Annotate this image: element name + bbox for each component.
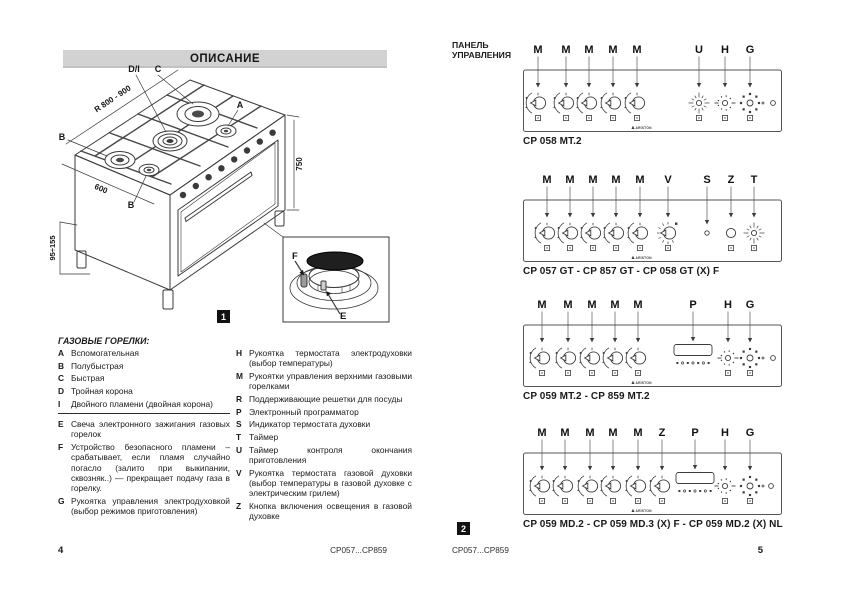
gas-control: M [626, 299, 646, 376]
control-label: V [664, 174, 672, 186]
brand-flame-icon [632, 256, 635, 259]
flame-safety-device [301, 274, 307, 287]
gas-control: Z [650, 427, 670, 504]
legend-key: C [58, 373, 64, 383]
brand-logo: ARISTON [636, 126, 653, 130]
brand-flame-icon [632, 381, 635, 384]
legend-divider [58, 413, 230, 414]
timer-control: T [744, 174, 765, 251]
legend-item-H: HРукоятка термостата электродуховки (выб… [236, 348, 412, 369]
control-label: H [721, 44, 729, 56]
control-label: M [537, 427, 546, 439]
thermo-control: H [715, 44, 736, 121]
legend-key: M [236, 371, 243, 381]
legend-item-S: SИндикатор термостата духовки [236, 419, 412, 429]
control-label: M [608, 44, 617, 56]
legend-left-column: AВспомогательнаяBПолубыстраяCБыстраяDТро… [58, 348, 230, 524]
legend-key: I [58, 399, 60, 409]
legend-text: Рукоятка термостата газовой духовки (выб… [249, 468, 412, 499]
legend-text: Вспомогательная [71, 348, 139, 358]
legend-key: B [58, 361, 64, 371]
thermo-control: H [715, 427, 736, 504]
page-number-left: 4 [58, 545, 63, 556]
legend-key: D [58, 386, 64, 396]
control-label: M [565, 174, 574, 186]
legend-text: Индикатор термостата духовки [249, 419, 370, 429]
control-label: M [633, 427, 642, 439]
brand-flame-icon [632, 509, 635, 512]
control-label: M [542, 174, 551, 186]
legend-text: Рукоятки управления верхними газовыми го… [249, 371, 412, 391]
dim-radius: R 800 - 900 [93, 83, 133, 114]
legend-key: Z [236, 501, 241, 511]
legend-item-I: IДвойного пламени (двойная корона) [58, 399, 230, 409]
panel-caption: CP 059 MT.2 - CP 859 MT.2 [523, 391, 650, 402]
oven-handle [185, 172, 252, 222]
gas-control: M [558, 174, 578, 251]
control-label: M [610, 299, 619, 311]
legend-item-G: GРукоятка управления электродуховкой (вы… [58, 496, 230, 517]
gas-control: M [556, 299, 576, 376]
sled-control: S [703, 174, 710, 235]
legend-text: Тройная корона [71, 386, 133, 396]
panel-caption: CP 058 MT.2 [523, 136, 582, 147]
label-f: F [292, 251, 298, 262]
indicator-control [769, 484, 774, 489]
control-label: G [746, 427, 755, 439]
timer-control: U [689, 44, 710, 121]
brand-logo: ARISTON [636, 381, 653, 385]
legend-key: A [58, 348, 64, 358]
control-panel-1: MMMMMUHGARISTONCP 058 MT.2 [523, 43, 842, 155]
legend-item-C: CБыстрая [58, 373, 230, 383]
control-panels: MMMMMUHGARISTONCP 058 MT.2MMMMMVSZTARIST… [523, 0, 842, 595]
legend-item-V: VРукоятка термостата газовой духовки (вы… [236, 468, 412, 499]
control-label: H [721, 427, 729, 439]
control-label: M [563, 299, 572, 311]
gas-control: M [604, 174, 624, 251]
legend-text: Быстрая [71, 373, 104, 383]
legend-text: Таймер [249, 432, 278, 442]
gas-control: M [535, 174, 555, 251]
dim-height: 750 [295, 157, 304, 171]
legend-item-R: RПоддерживающие решетки для посуды [236, 394, 412, 404]
indicator-control [771, 356, 776, 361]
legend-text: Рукоятка термостата электродуховки (выбо… [249, 348, 412, 368]
control-panel-drawing: MMMMMZPHGARISTON [523, 426, 815, 517]
dim-legs: 95÷155 [50, 236, 57, 261]
control-label: M [587, 299, 596, 311]
gas-control: M [580, 299, 600, 376]
legend-key: G [58, 496, 65, 506]
control-label: M [588, 174, 597, 186]
control-label: P [689, 299, 696, 311]
control-panel-drawing: MMMMMPHGARISTON [523, 298, 815, 389]
brand-logo: ARISTON [636, 509, 653, 513]
control-panel-drawing: MMMMMUHGARISTON [523, 43, 815, 134]
oven-door [178, 140, 278, 276]
legend-item-E: EСвеча электронного зажигания газовых го… [58, 419, 230, 440]
legend-right-column: HРукоятка термостата электродуховки (выб… [236, 348, 412, 524]
burner-rapid [177, 102, 219, 126]
legend-item-F: FУстройство безопасного пламени – срабат… [58, 442, 230, 493]
gas-control: M [601, 427, 621, 504]
button-control: Z [726, 174, 735, 251]
stove-legs [77, 211, 284, 309]
gas-control: M [578, 427, 598, 504]
label-b-front: B [128, 200, 135, 210]
prog-control: P [676, 427, 714, 492]
legend-key: U [236, 445, 242, 455]
heading-line-2: УПРАВЛЕНИЯ [452, 50, 511, 60]
gas-control: M [530, 299, 550, 376]
burner-detail-inset [283, 237, 389, 322]
legend-text: Поддерживающие решетки для посуды [249, 394, 402, 404]
figure-1-badge: 1 [217, 310, 230, 323]
control-label: M [561, 44, 570, 56]
legend-key: E [58, 419, 64, 429]
legend-item-U: UТаймер контроля окончания приготовления [236, 445, 412, 466]
gas-control: M [526, 44, 546, 121]
vknob-control: V [657, 174, 677, 251]
selector-control: G [740, 299, 764, 376]
legend-key: F [58, 442, 63, 452]
legend: AВспомогательнаяBПолубыстраяCБыстраяDТро… [58, 348, 418, 524]
legend-item-T: TТаймер [236, 432, 412, 442]
indicator-control [771, 101, 776, 106]
label-di: D/I [128, 64, 140, 74]
control-label: M [533, 44, 542, 56]
legend-text: Рукоятка управления электродуховкой (выб… [71, 496, 230, 516]
legend-text: Таймер контроля окончания приготовления [249, 445, 412, 465]
burner-semirapid-front [139, 164, 159, 176]
control-panel-4: MMMMMZPHGARISTONCP 059 MD.2 - CP 059 MD.… [523, 426, 842, 538]
stove-diagram: D/I C A B B R 800 - 900 600 750 95÷155 [50, 60, 395, 330]
legend-text: Двойного пламени (двойная корона) [71, 399, 213, 409]
burner-triple-crown [153, 131, 187, 151]
legend-text: Электронный программатор [249, 407, 359, 417]
gas-control: M [581, 174, 601, 251]
label-b: B [59, 132, 66, 142]
brand-logo: ARISTON [636, 256, 653, 260]
panel-caption: CP 059 MD.2 - CP 059 MD.3 (X) F - CP 059… [523, 519, 783, 530]
label-c: C [155, 64, 162, 74]
control-label: G [746, 44, 755, 56]
model-range-right: CP057...CP859 [452, 546, 509, 555]
control-panel-drawing: MMMMMVSZTARISTON [523, 173, 815, 264]
control-label: M [537, 299, 546, 311]
control-label: M [635, 174, 644, 186]
control-label: T [751, 174, 758, 186]
gas-control: M [625, 44, 645, 121]
legend-item-A: AВспомогательная [58, 348, 230, 358]
gas-control: M [628, 174, 648, 251]
legend-key: S [236, 419, 242, 429]
legend-key: P [236, 407, 242, 417]
prog-control: P [674, 299, 712, 364]
control-label: M [632, 44, 641, 56]
control-label: Z [728, 174, 735, 186]
legend-item-P: PЭлектронный программатор [236, 407, 412, 417]
gas-control: M [530, 427, 550, 504]
selector-control: G [740, 427, 764, 504]
control-label: H [724, 299, 732, 311]
burner-cap [307, 252, 363, 270]
selector-control: G [740, 44, 764, 121]
legend-item-M: MРукоятки управления верхними газовыми г… [236, 371, 412, 392]
gas-control: M [626, 427, 646, 504]
control-label: S [703, 174, 710, 186]
control-label: P [691, 427, 698, 439]
control-panel-3: MMMMMPHGARISTONCP 059 MT.2 - CP 859 MT.2 [523, 298, 842, 410]
control-label: Z [659, 427, 666, 439]
gas-control: M [603, 299, 623, 376]
control-label: M [584, 44, 593, 56]
model-range-left: CP057...CP859 [287, 546, 387, 555]
legend-item-Z: ZКнопка включения освещения в газовой ду… [236, 501, 412, 522]
label-a: A [237, 100, 244, 110]
legend-text: Устройство безопасного пламени – срабаты… [71, 442, 230, 493]
thermo-control: H [718, 299, 739, 376]
legend-key: R [236, 394, 242, 404]
control-label: M [633, 299, 642, 311]
burner-auxiliary [216, 125, 236, 137]
legend-text: Свеча электронного зажигания газовых гор… [71, 419, 230, 439]
figure-2-badge: 2 [457, 522, 470, 535]
control-panel-heading: ПАНЕЛЬ УПРАВЛЕНИЯ [452, 40, 511, 60]
ignition-plug [321, 281, 326, 290]
legend-key: T [236, 432, 241, 442]
control-label: G [746, 299, 755, 311]
legend-text: Полубыстрая [71, 361, 123, 371]
dim-width: 600 [93, 182, 109, 196]
gas-control: M [577, 44, 597, 121]
heading-line-1: ПАНЕЛЬ [452, 40, 511, 50]
legend-title: ГАЗОВЫЕ ГОРЕЛКИ: [58, 336, 149, 346]
manual-spread: ОПИСАНИЕ [0, 0, 842, 595]
label-e: E [340, 311, 346, 322]
gas-control: M [554, 44, 574, 121]
control-label: M [611, 174, 620, 186]
gas-control: M [601, 44, 621, 121]
legend-key: V [236, 468, 242, 478]
page-number-right: 5 [735, 545, 763, 556]
legend-item-D: DТройная корона [58, 386, 230, 396]
control-label: U [695, 44, 703, 56]
legend-key: H [236, 348, 242, 358]
control-panel-2: MMMMMVSZTARISTONCP 057 GT - CP 857 GT - … [523, 173, 842, 285]
control-label: M [560, 427, 569, 439]
brand-flame-icon [632, 126, 635, 129]
panel-caption: CP 057 GT - CP 857 GT - CP 058 GT (X) F [523, 266, 719, 277]
legend-text: Кнопка включения освещения в газовой дух… [249, 501, 412, 521]
legend-item-B: BПолубыстрая [58, 361, 230, 371]
control-label: M [608, 427, 617, 439]
gas-control: M [553, 427, 573, 504]
burner-semirapid-left [105, 152, 135, 169]
control-label: M [585, 427, 594, 439]
